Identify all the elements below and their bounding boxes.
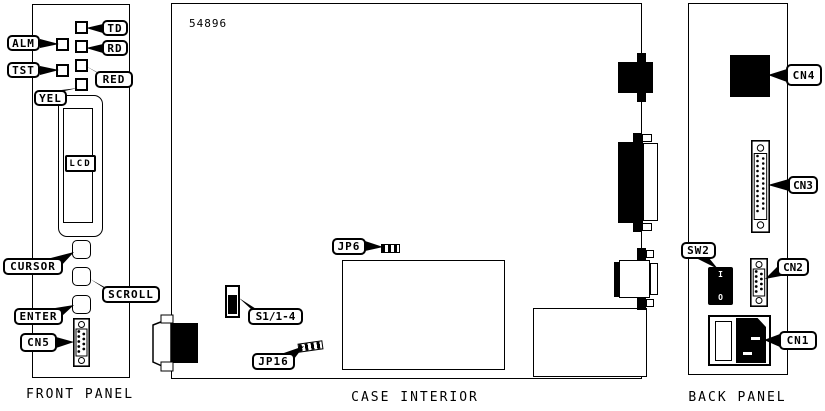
diagram-canvas: 54896 LCD	[0, 0, 825, 411]
sw2-leader	[696, 258, 718, 269]
cn4-leader	[768, 69, 787, 82]
callout-jp16: JP16	[252, 353, 295, 370]
cn5-leader	[56, 337, 74, 348]
callout-alm: ALM	[7, 35, 40, 51]
callout-cn2: CN2	[777, 258, 809, 276]
td-leader	[86, 24, 103, 33]
cn3-leader	[768, 179, 789, 191]
callout-s1: S1/1-4	[248, 308, 303, 325]
callout-cn5: CN5	[20, 333, 57, 352]
callout-cursor: CURSOR	[3, 258, 63, 275]
callout-rd: RD	[102, 40, 128, 56]
callout-red: RED	[95, 71, 133, 88]
callout-cn3: CN3	[788, 176, 818, 194]
jp6-leader	[365, 241, 383, 251]
callout-scroll: SCROLL	[102, 286, 160, 303]
rd-leader	[86, 44, 103, 53]
cn1-leader	[764, 334, 780, 347]
callout-td: TD	[102, 20, 128, 36]
lcd-label: LCD	[65, 155, 96, 172]
callout-jp6: JP6	[332, 238, 366, 255]
callout-cn1: CN1	[779, 331, 817, 350]
alm-leader	[40, 39, 59, 48]
callout-yel: YEL	[34, 90, 67, 106]
tst-leader	[40, 66, 59, 75]
callout-tst: TST	[7, 62, 40, 78]
callout-enter: ENTER	[14, 308, 63, 325]
callout-cn4: CN4	[786, 64, 822, 86]
callout-leader-lines	[0, 0, 825, 411]
callout-sw2: SW2	[681, 242, 716, 259]
